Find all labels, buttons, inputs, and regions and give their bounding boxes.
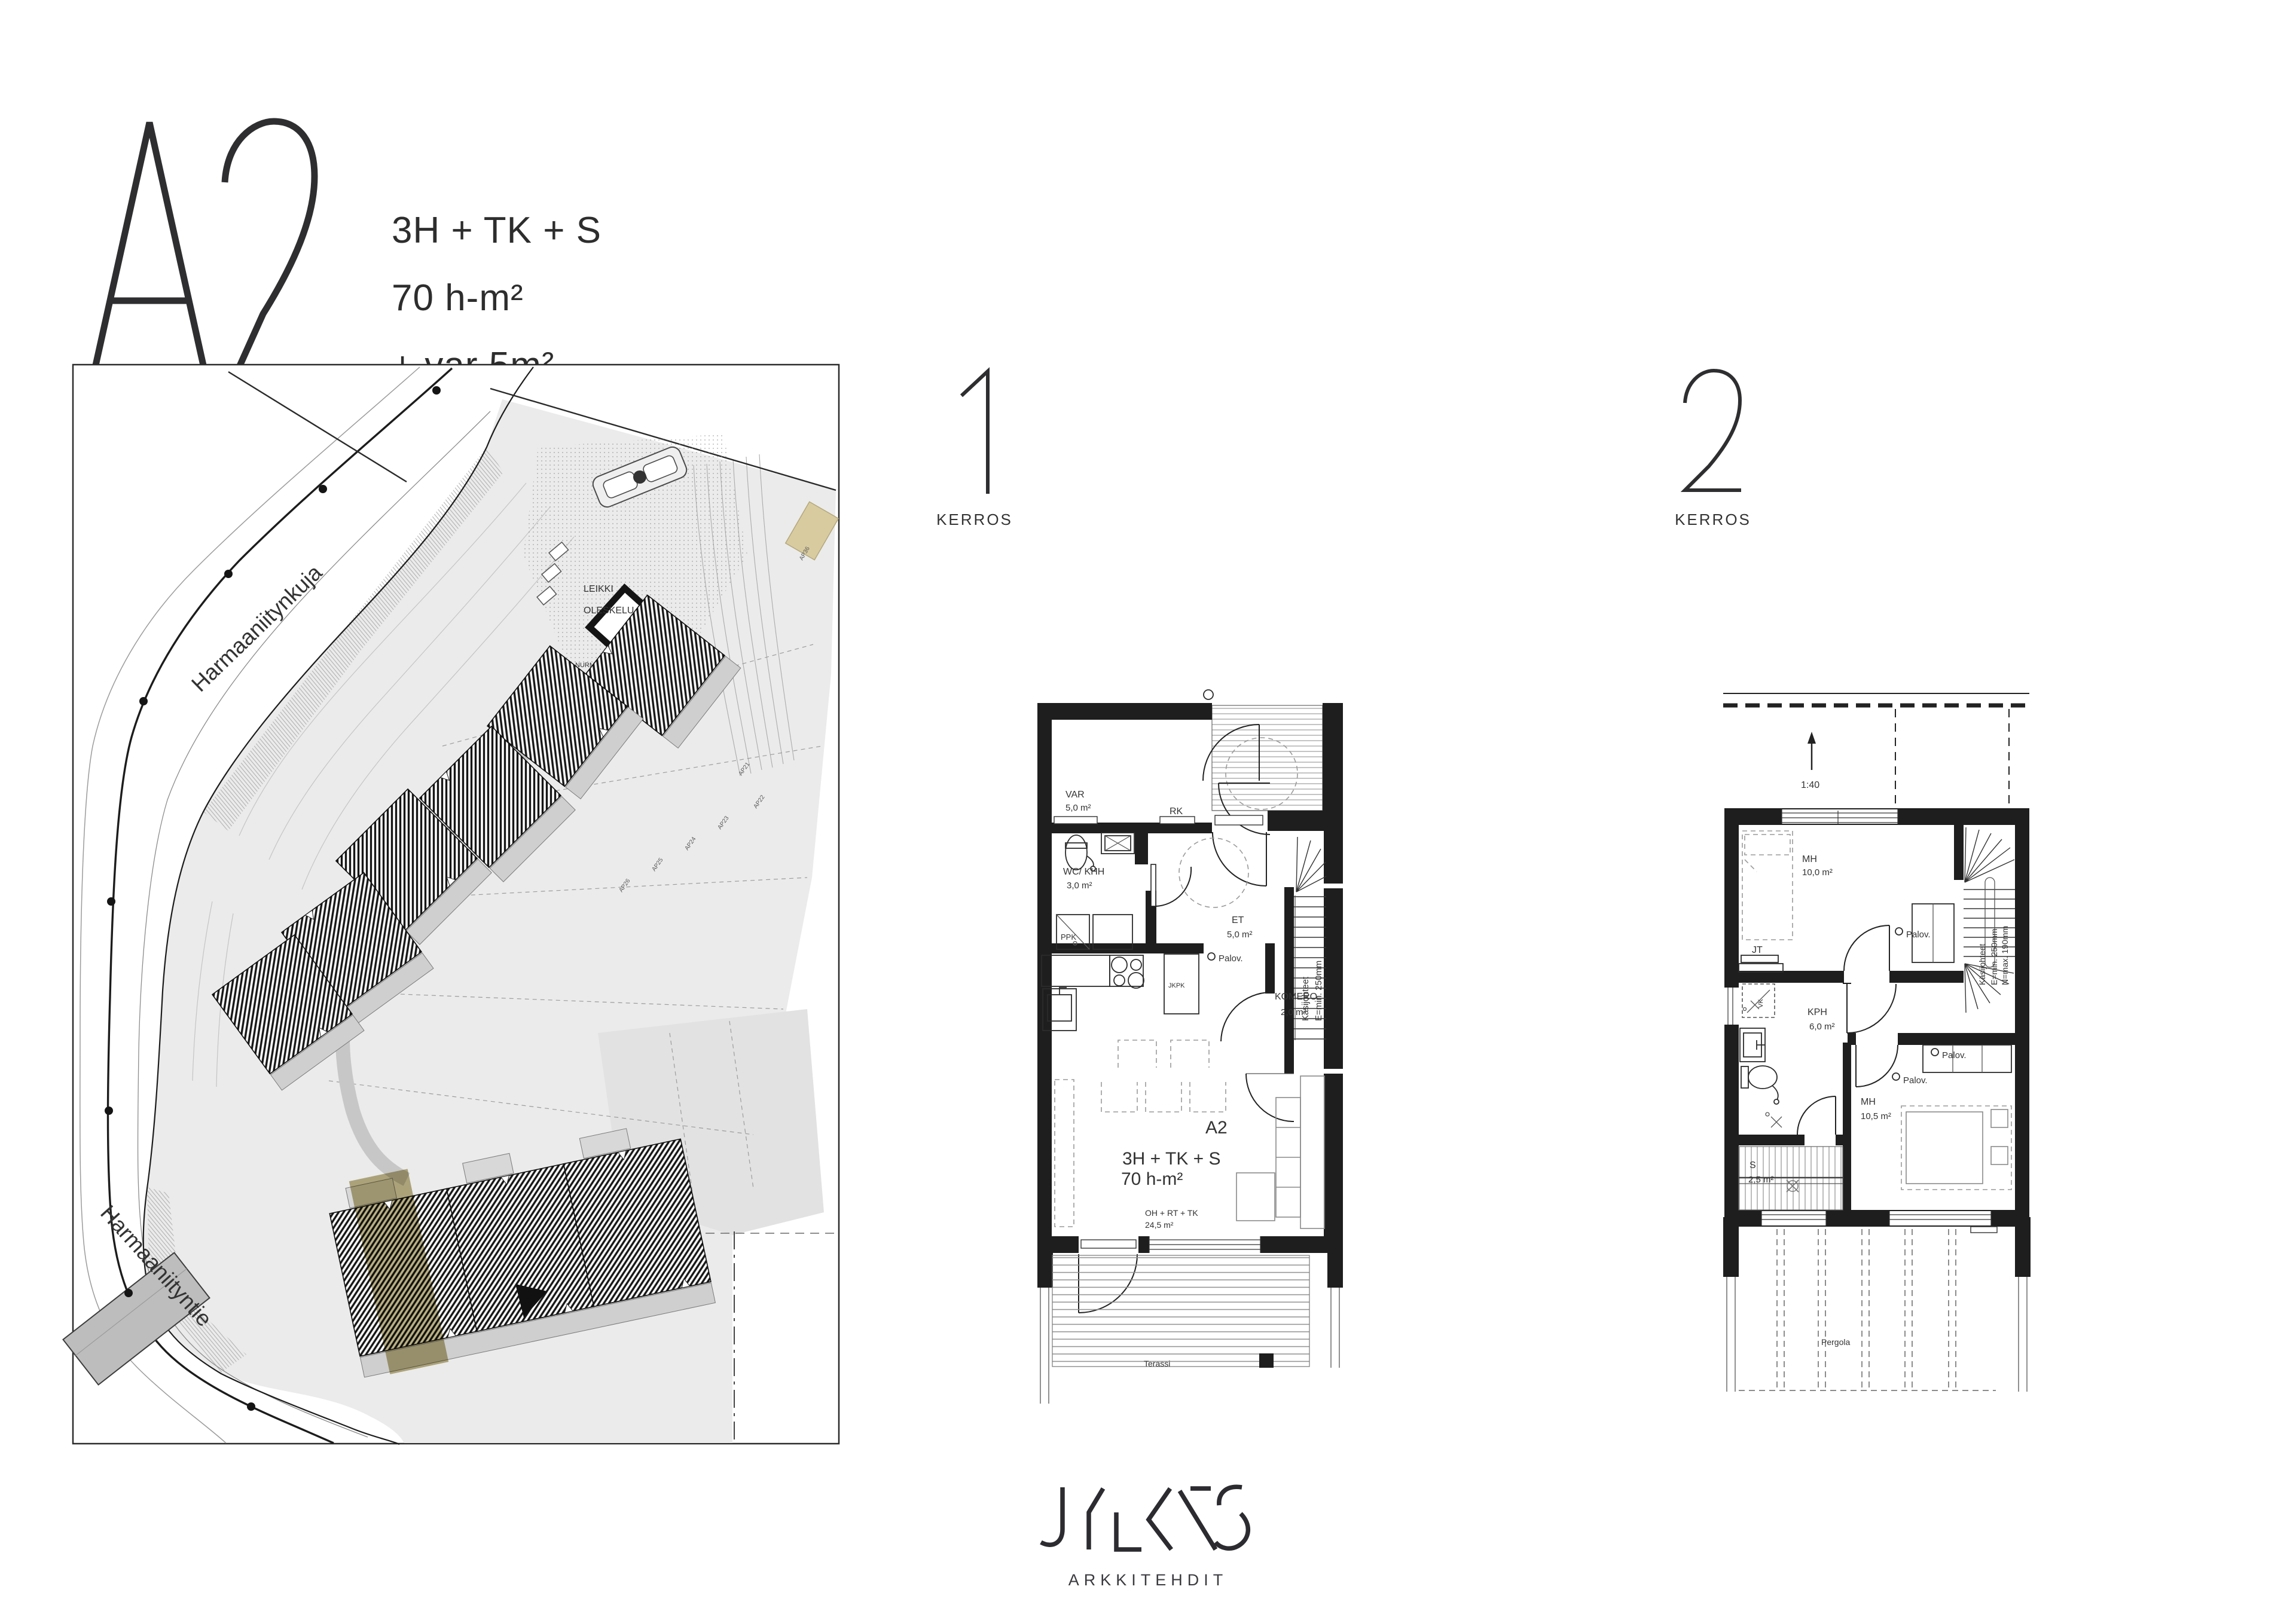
- play-label-2: OLESKELU: [584, 606, 634, 616]
- brand-wordmark: [1031, 1483, 1265, 1560]
- stair-note-1: Käsijohteet: [1300, 976, 1311, 1021]
- sofa: [1236, 1076, 1324, 1228]
- living-window: [1149, 1236, 1260, 1253]
- stair-note-3: N=max. 190mm: [2000, 926, 2010, 985]
- washbasin: [1101, 833, 1134, 854]
- toilet: [1065, 835, 1087, 870]
- floor2-number-glyph: [1680, 366, 1746, 496]
- et-area: 5,0 m²: [1227, 930, 1253, 940]
- et-turning-circle: [1179, 838, 1248, 907]
- site-plan: LEIKKI OLESKELU NURMI: [72, 363, 840, 1445]
- toilet: [1741, 1066, 1779, 1104]
- mh1-window: [1782, 809, 1898, 824]
- wc-area: 3,0 m²: [1067, 881, 1092, 891]
- floor1-title: KERROS: [936, 366, 1013, 529]
- kph-fixtures: [1740, 1028, 1782, 1127]
- scale-label: 1:40: [1801, 780, 1819, 790]
- vk-label: VK: [1757, 999, 1764, 1008]
- downpipe: [1204, 690, 1213, 699]
- letter-L: [1116, 1512, 1141, 1549]
- roof-lines: [1723, 693, 2029, 808]
- kph-window: [1724, 988, 1739, 1025]
- stove: [1110, 955, 1144, 988]
- et-label: ET: [1232, 915, 1244, 925]
- mh2-area: 10,5 m²: [1861, 1111, 1891, 1121]
- washbasin: [1740, 1028, 1765, 1062]
- palov-1: Palov.: [1906, 930, 1931, 940]
- rk-label: RK: [1170, 806, 1183, 817]
- brand-subtitle: ARKKITEHDIT: [1016, 1571, 1280, 1590]
- jt-shelf: [1739, 955, 1783, 972]
- floor2-title: KERROS: [1674, 366, 1752, 529]
- rk-sill: [1160, 817, 1195, 824]
- wc-fixtures: [1057, 833, 1134, 949]
- floor2-plan: 1:40: [1715, 674, 2069, 1410]
- play-label-1: LEIKKI: [584, 584, 613, 594]
- smoke-detector: [1208, 953, 1215, 960]
- wc-label: WC/ KHH: [1063, 867, 1104, 877]
- jkpk-label: JKPK: [1168, 982, 1185, 989]
- letter-Y: [1089, 1488, 1103, 1549]
- mh2-label: MH: [1861, 1097, 1876, 1107]
- palov-label: Palov.: [1219, 953, 1243, 964]
- unit-id-label: A2: [1205, 1118, 1228, 1138]
- unit-area: 70 h-m²: [392, 265, 602, 332]
- letter-AUML: [1180, 1488, 1216, 1549]
- kitchen: [1042, 954, 1199, 1031]
- letter-S: [1216, 1487, 1248, 1548]
- floor1-number-glyph: [955, 366, 994, 496]
- s-area: 2,5 m²: [1748, 1175, 1774, 1185]
- letter-A: [88, 123, 210, 398]
- kph-area: 6,0 m²: [1809, 1022, 1835, 1032]
- mh1-label: MH: [1802, 854, 1817, 864]
- mh1-area: 10,0 m²: [1802, 867, 1833, 878]
- living-label: OH + RT + TK: [1145, 1208, 1198, 1218]
- plan-sheet: { "header": { "unit_id": "A2", "config":…: [0, 0, 2296, 1623]
- pergola-label: Pergola: [1821, 1337, 1850, 1347]
- digit-2: [225, 121, 316, 396]
- living-door-opening: [1079, 1236, 1138, 1253]
- palov-3: Palov.: [1903, 1075, 1928, 1086]
- floor1-label: KERROS: [936, 511, 1013, 529]
- kph-label: KPH: [1808, 1007, 1827, 1017]
- living-area: 24,5 m²: [1145, 1220, 1174, 1230]
- mh1-bed: [1742, 831, 1793, 940]
- unit-area-label: 70 h-m²: [1121, 1169, 1183, 1189]
- north-arrow: [1808, 732, 1816, 770]
- stair-note-2: E=min. 250mm: [1989, 928, 1999, 985]
- wardrobe-reservation: [1055, 1080, 1074, 1227]
- floor1-plan: VAR 5,0 m² RK WC/ KHH 3,0 m² PPK JKPK ET…: [1028, 686, 1375, 1404]
- letter-J: [1041, 1487, 1062, 1545]
- komero-label: KOMERO: [1275, 992, 1317, 1002]
- letter-K: [1149, 1488, 1171, 1549]
- floor2-label: KERROS: [1674, 511, 1752, 529]
- stair-note-1: Käsijohteet: [1977, 944, 1987, 985]
- var-area: 5,0 m²: [1065, 803, 1091, 813]
- jt-label: JT: [1752, 945, 1763, 955]
- smoke-detectors: [1892, 928, 1938, 1080]
- pergola: [1723, 1217, 2031, 1392]
- front-door-sill: [1215, 815, 1263, 825]
- unit-config-label: 3H + TK + S: [1122, 1149, 1221, 1169]
- terrace-label: Terassi: [1144, 1359, 1170, 1368]
- s-label: S: [1750, 1160, 1756, 1170]
- var-label: VAR: [1065, 790, 1085, 800]
- var-window-sill: [1054, 817, 1097, 824]
- dining-set: [1101, 1040, 1226, 1112]
- floor-drain: [1766, 1112, 1782, 1127]
- palov-2: Palov.: [1942, 1050, 1967, 1060]
- terrace: [1037, 1240, 1343, 1404]
- stair-note-2: E=min. 250mm: [1314, 961, 1324, 1021]
- ppk-label: PPK: [1061, 933, 1076, 942]
- unit-config: 3H + TK + S: [392, 197, 602, 265]
- mh2-bed: [1901, 1106, 2011, 1190]
